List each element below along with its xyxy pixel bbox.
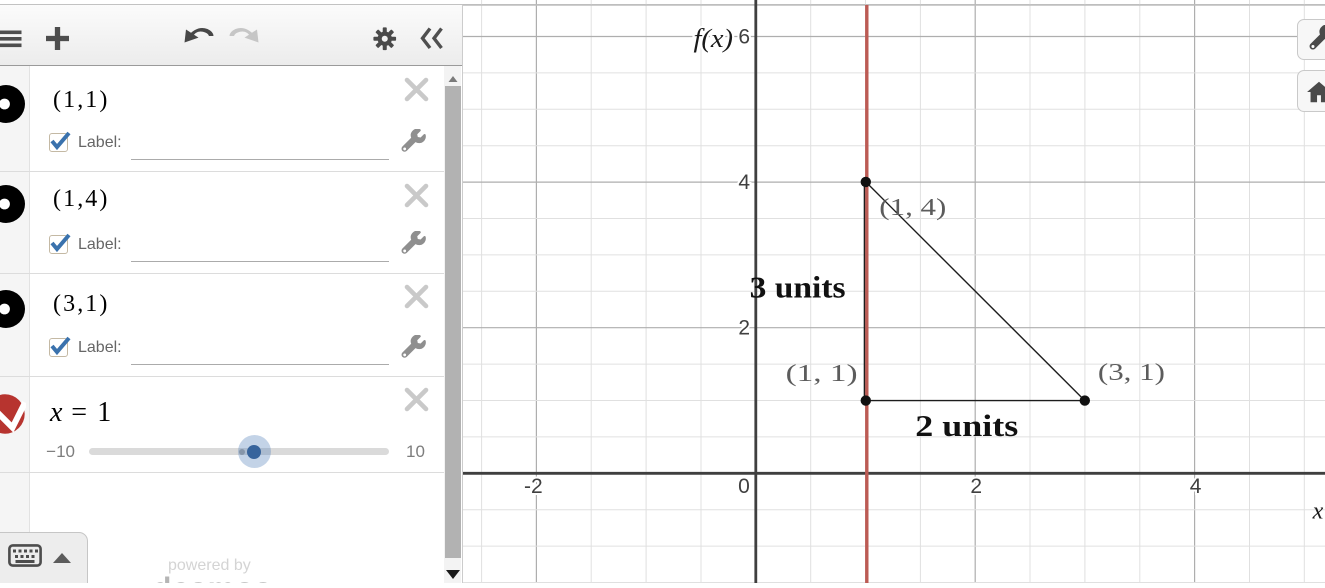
svg-text:(3, 1): (3, 1) xyxy=(1098,360,1165,386)
svg-text:(1, 4): (1, 4) xyxy=(879,195,946,221)
svg-text:f(x): f(x) xyxy=(694,24,734,53)
svg-text:6: 6 xyxy=(738,26,750,49)
svg-text:0: 0 xyxy=(738,475,750,498)
svg-text:x: x xyxy=(1312,499,1324,525)
svg-text:3 units: 3 units xyxy=(750,270,846,305)
svg-text:-2: -2 xyxy=(524,475,543,498)
svg-text:2: 2 xyxy=(970,475,982,498)
svg-text:2 units: 2 units xyxy=(915,408,1018,443)
svg-text:2: 2 xyxy=(738,317,750,340)
svg-text:4: 4 xyxy=(738,171,750,194)
svg-text:4: 4 xyxy=(1190,475,1202,498)
svg-text:(1, 1): (1, 1) xyxy=(786,361,858,387)
